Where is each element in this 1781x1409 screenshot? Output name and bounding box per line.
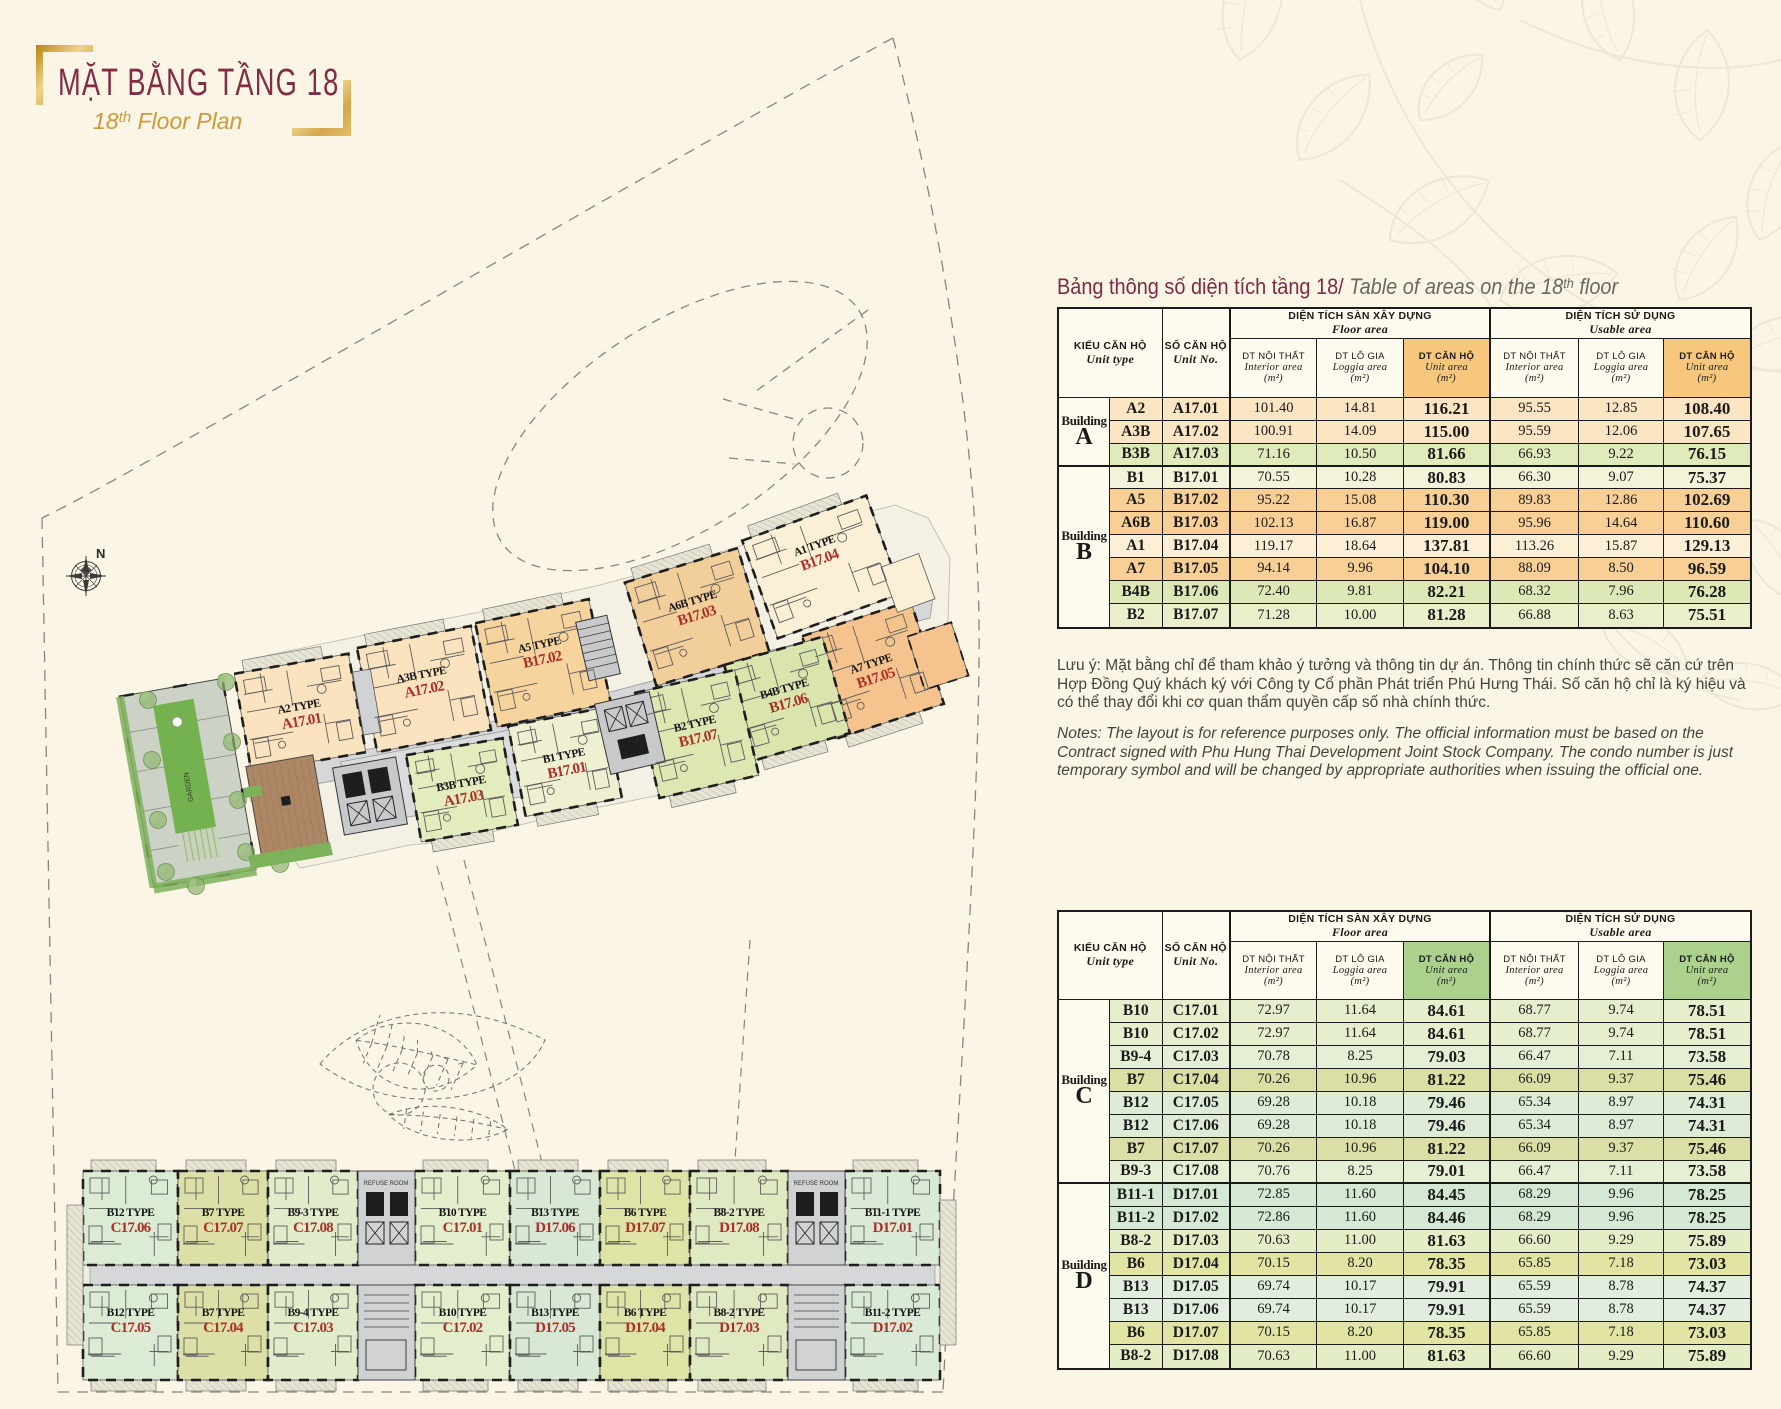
svg-text:C17.08: C17.08 (293, 1220, 333, 1236)
svg-text:B13 TYPE: B13 TYPE (531, 1207, 580, 1219)
svg-text:B13 TYPE: B13 TYPE (531, 1307, 580, 1319)
svg-text:B10 TYPE: B10 TYPE (439, 1207, 488, 1219)
svg-text:B11-1 TYPE: B11-1 TYPE (865, 1207, 921, 1219)
svg-text:B12 TYPE: B12 TYPE (107, 1207, 156, 1219)
svg-text:REFUSE ROOM: REFUSE ROOM (794, 1181, 839, 1187)
svg-text:B9-3 TYPE: B9-3 TYPE (288, 1207, 340, 1219)
svg-text:B7 TYPE: B7 TYPE (202, 1307, 245, 1319)
svg-text:D17.02: D17.02 (873, 1320, 913, 1336)
svg-text:D17.06: D17.06 (535, 1220, 576, 1236)
svg-text:C17.04: C17.04 (203, 1320, 244, 1336)
svg-text:B6 TYPE: B6 TYPE (624, 1207, 667, 1219)
svg-text:D17.05: D17.05 (535, 1320, 575, 1336)
svg-text:B12 TYPE: B12 TYPE (107, 1307, 156, 1319)
svg-text:C17.05: C17.05 (111, 1320, 151, 1336)
svg-text:C17.02: C17.02 (443, 1320, 483, 1336)
svg-text:D17.04: D17.04 (625, 1320, 666, 1336)
svg-text:D17.01: D17.01 (873, 1220, 913, 1236)
svg-text:C17.03: C17.03 (293, 1320, 333, 1336)
svg-text:REFUSE ROOM: REFUSE ROOM (364, 1181, 409, 1187)
svg-text:B9-4 TYPE: B9-4 TYPE (288, 1307, 340, 1319)
svg-text:D17.07: D17.07 (625, 1220, 666, 1236)
svg-text:D17.03: D17.03 (719, 1320, 759, 1336)
svg-text:D17.08: D17.08 (719, 1220, 759, 1236)
svg-text:B6 TYPE: B6 TYPE (624, 1307, 667, 1319)
svg-text:B8-2 TYPE: B8-2 TYPE (714, 1207, 766, 1219)
svg-text:C17.07: C17.07 (203, 1220, 244, 1236)
svg-text:B8-2 TYPE: B8-2 TYPE (714, 1307, 766, 1319)
svg-text:C17.06: C17.06 (111, 1220, 152, 1236)
svg-text:B10 TYPE: B10 TYPE (439, 1307, 488, 1319)
svg-text:B7 TYPE: B7 TYPE (202, 1207, 245, 1219)
svg-text:C17.01: C17.01 (443, 1220, 483, 1236)
svg-text:N: N (96, 546, 105, 561)
svg-text:B11-2 TYPE: B11-2 TYPE (865, 1307, 921, 1319)
